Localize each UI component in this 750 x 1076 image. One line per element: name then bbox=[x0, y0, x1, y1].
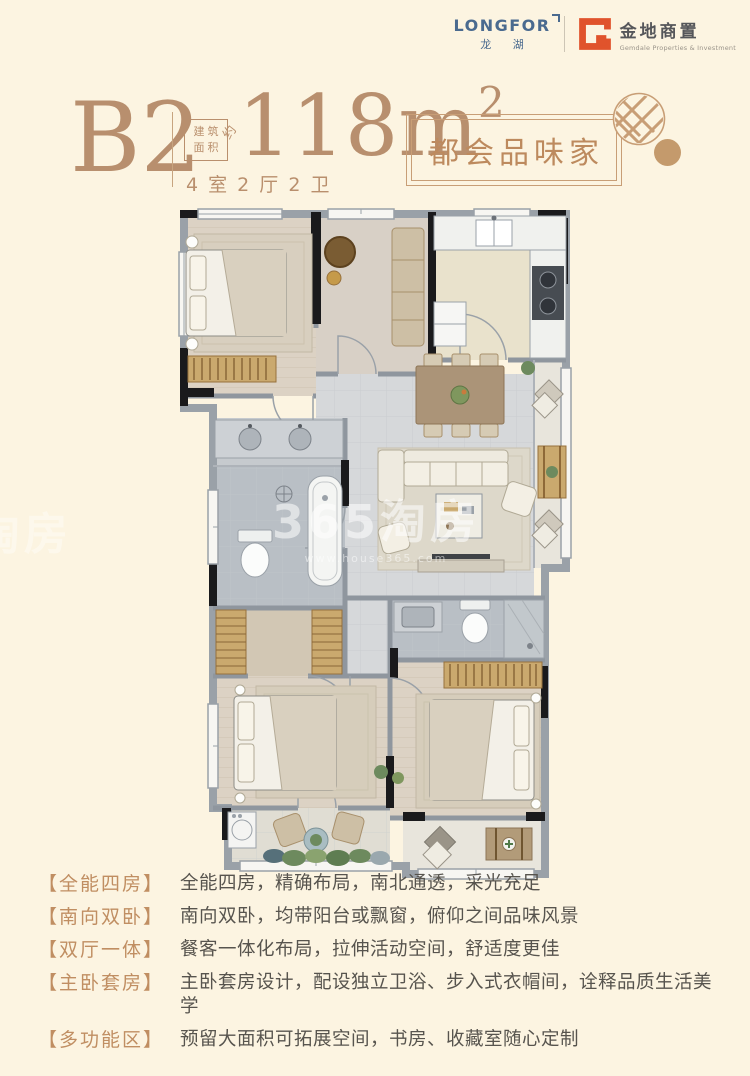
room-dining bbox=[416, 354, 504, 437]
feature-row: 【主卧套房】 主卧套房设计，配设独立卫浴、步入式衣帽间，诠释品质生活美学 bbox=[38, 971, 728, 1019]
rooms-count-line: 4 室 2 厅 2 卫 bbox=[186, 170, 331, 197]
slogan-badge: 都会品味家 bbox=[406, 114, 622, 186]
feature-text: 主卧套房设计，配设独立卫浴、步入式衣帽间，诠释品质生活美学 bbox=[180, 971, 728, 1019]
longfor-logo: LONGFOR 龙 湖 bbox=[453, 16, 550, 52]
svg-text:www.house365.com: www.house365.com bbox=[305, 552, 448, 565]
slogan-text: 都会品味家 bbox=[424, 128, 604, 172]
deco-dot bbox=[654, 139, 681, 166]
yarn-ball-icon bbox=[610, 90, 668, 148]
feature-label: 【主卧套房】 bbox=[38, 971, 180, 995]
feature-text: 预留大面积可拓展空间，书房、收藏室随心定制 bbox=[180, 1028, 579, 1052]
gemdale-logo: 金地商置 Gemdale Properties & Investment bbox=[578, 17, 736, 52]
flyer-page: LONGFOR 龙 湖 金地商置 Gemdale Properties & In… bbox=[0, 0, 750, 1076]
feature-label: 【双厅一体】 bbox=[38, 938, 180, 962]
watermark-fragment: 365淘房 bbox=[0, 498, 72, 562]
feature-row: 【南向双卧】 南向双卧，均带阳台或飘窗，俯仰之间品味风景 bbox=[38, 905, 728, 929]
feature-text: 南向双卧，均带阳台或飘窗，俯仰之间品味风景 bbox=[180, 905, 579, 929]
slogan-badge-inner: 都会品味家 bbox=[411, 119, 617, 181]
gemdale-cn-label: 金地商置 bbox=[620, 17, 736, 42]
feature-label: 【多功能区】 bbox=[38, 1028, 180, 1052]
feature-text: 全能四房，精确布局，南北通透，采光充足 bbox=[180, 872, 541, 896]
longfor-corner-icon bbox=[552, 14, 560, 22]
floor-plan-image: 365淘房 www.house365.com bbox=[178, 208, 574, 880]
brand-logos: LONGFOR 龙 湖 金地商置 Gemdale Properties & In… bbox=[453, 16, 736, 52]
vanity-counter bbox=[215, 420, 343, 458]
feature-row: 【双厅一体】 餐客一体化布局，拉伸活动空间，舒适度更佳 bbox=[38, 938, 728, 962]
feature-label: 【全能四房】 bbox=[38, 872, 180, 896]
logo-divider bbox=[564, 16, 565, 52]
headline-divider bbox=[172, 112, 173, 187]
gemdale-mark-icon bbox=[578, 17, 612, 51]
feature-text: 餐客一体化布局，拉伸活动空间，舒适度更佳 bbox=[180, 938, 560, 962]
feature-row: 【全能四房】 全能四房，精确布局，南北通透，采光充足 bbox=[38, 872, 728, 896]
gemdale-en-label: Gemdale Properties & Investment bbox=[620, 44, 736, 52]
longfor-cn-label: 龙 湖 bbox=[462, 36, 550, 52]
feature-list: 【全能四房】 全能四房，精确布局，南北通透，采光充足 【南向双卧】 南向双卧，均… bbox=[38, 872, 728, 1061]
longfor-wordmark: LONGFOR bbox=[453, 16, 550, 35]
feature-row: 【多功能区】 预留大面积可拓展空间，书房、收藏室随心定制 bbox=[38, 1028, 728, 1052]
feature-label: 【南向双卧】 bbox=[38, 905, 180, 929]
unit-code: B2 bbox=[70, 90, 202, 186]
svg-text:365淘房: 365淘房 bbox=[272, 495, 480, 549]
